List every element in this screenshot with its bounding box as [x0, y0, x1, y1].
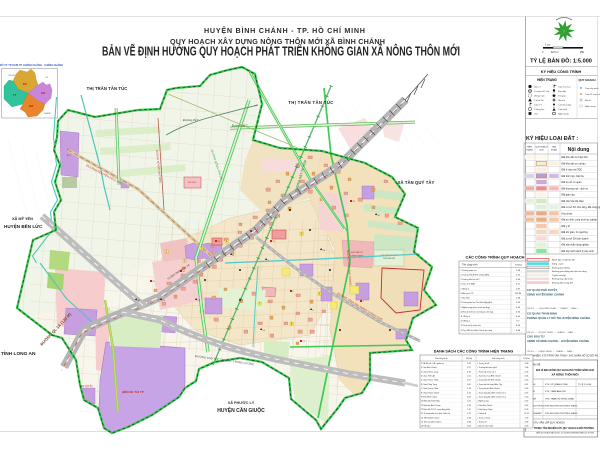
svg-text:CƠ QUAN THẨM ĐỊNH: CƠ QUAN THẨM ĐỊNH	[527, 311, 557, 316]
svg-text:XÃ MỸ YÊN: XÃ MỸ YÊN	[12, 216, 33, 221]
svg-text:0.04: 0.04	[525, 376, 529, 378]
svg-text:Trạm thu mua: Trạm thu mua	[558, 85, 571, 88]
svg-text:Đất hỗn hợp, biệt thự: Đất hỗn hợp, biệt thự	[562, 175, 585, 178]
svg-text:12 Đất CA, PCCC, trạm đăng kiể: 12 Đất CA, PCCC, trạm đăng kiểm	[421, 408, 451, 411]
svg-text:10 Khu di tích lịch sử (trùng: 10 Khu di tích lịch sử (trùng tu, tôn tạ…	[461, 310, 494, 313]
svg-text:BẢN VẼ ĐỊNH HƯỚNG QUY HOẠCH PH: BẢN VẼ ĐỊNH HƯỚNG QUY HOẠCH PHÁT TRIỂN K…	[102, 44, 460, 59]
svg-text:3 Chùa Phước Long: 3 Chùa Phước Long	[421, 371, 438, 373]
svg-text:0.58: 0.58	[525, 396, 529, 398]
svg-text:Chợ: Chợ	[534, 113, 539, 115]
svg-text:THỊ TRẤN TÂN TÚC: THỊ TRẤN TÂN TÚC	[87, 86, 128, 91]
svg-text:Bưu điện: Bưu điện	[558, 90, 566, 93]
svg-text:0.27: 0.27	[467, 367, 471, 369]
svg-text:Trường học: Trường học	[534, 109, 544, 111]
svg-text:13 Trạm xử lý nước thải: 13 Trạm xử lý nước thải	[461, 324, 482, 327]
svg-text:Trạm XL nước thải: Trạm XL nước thải	[585, 93, 600, 96]
svg-text:HIỆN TRẠNG: HIỆN TRẠNG	[537, 77, 557, 82]
svg-text:Tên công trình: Tên công trình	[435, 357, 448, 360]
svg-text:1.76: 1.76	[525, 417, 529, 419]
svg-text:XÃ TÂN QUÝ TÂY: XÃ TÂN QUÝ TÂY	[398, 180, 435, 185]
svg-text:0.08: 0.08	[525, 422, 529, 424]
svg-text:Ranh đất có QĐ thu hồi: Ranh đất có QĐ thu hồi	[552, 259, 575, 262]
svg-text:+ Trạm cư B số: + Trạm cư B số	[477, 416, 491, 419]
svg-text:Tuyến xe buýt: Tuyến xe buýt	[552, 274, 566, 277]
svg-text:Nghĩa trang: Nghĩa trang	[585, 105, 595, 108]
svg-text:Nhà thờ: Nhà thờ	[558, 99, 566, 102]
svg-text:0.18: 0.18	[467, 371, 471, 373]
svg-text:Đất văn hóa thể thao: Đất văn hóa thể thao	[562, 200, 585, 203]
svg-text:+ Trạm trộn bê tông Miền Tây: + Trạm trộn bê tông Miền Tây	[477, 383, 502, 386]
svg-text:0.47: 0.47	[525, 401, 529, 403]
svg-text:Sông - rạch: Sông - rạch	[552, 263, 564, 266]
svg-text:UB ấp, trạm: UB ấp, trạm	[534, 94, 545, 97]
svg-text:0.09: 0.09	[525, 371, 529, 373]
svg-text:Đất thương mại - dịch vụ: Đất thương mại - dịch vụ	[562, 187, 589, 190]
svg-text:C.trình hạ tầng: C.trình hạ tầng	[558, 103, 571, 106]
svg-text:+ Kho Bình Thành: + Kho Bình Thành	[477, 405, 492, 407]
svg-text:UBND XÃ BÌNH CHÁNH - HUYỆN BÌN: UBND XÃ BÌNH CHÁNH - HUYỆN BÌNH CHÁNH	[527, 338, 589, 343]
svg-text:C.trình VH: C.trình VH	[534, 99, 544, 102]
svg-text:0.44: 0.44	[525, 380, 529, 382]
svg-text:7 Khu TĐC: 7 Khu TĐC	[461, 298, 471, 300]
svg-text:5 Chùa Phước Thiện: 5 Chùa Phước Thiện	[421, 380, 439, 382]
svg-text:1.15: 1.15	[467, 409, 471, 411]
svg-text:0.07: 0.07	[467, 380, 471, 382]
svg-text:Nghĩa trang: Nghĩa trang	[558, 112, 568, 115]
svg-text:12 UB ấp 1: 12 UB ấp 1	[461, 320, 470, 323]
svg-text:9 Nghĩa trang (hoàn chỉnh hạ: 9 Nghĩa trang (hoàn chỉnh hạ tầng)	[461, 306, 491, 309]
svg-text:QUY HOẠCH: QUY HOẠCH	[535, 146, 548, 149]
svg-text:CÁC CÔNG TRÌNH QUY HOẠCH: CÁC CÔNG TRÌNH QUY HOẠCH	[466, 255, 525, 260]
svg-text:KDC MỚI: KDC MỚI	[188, 181, 196, 184]
svg-text:+ Kho Hưng Thịnh: + Kho Hưng Thịnh	[477, 409, 492, 411]
svg-text:CHỦ NHIỆM: KTS TRẦN VĂN THẨM: CHỦ NHIỆM: KTS TRẦN VĂN THẨM - XÁC NHẬN …	[527, 355, 598, 358]
svg-text:Đất y tế: Đất y tế	[562, 225, 571, 228]
svg-text:Kho chứa: Kho chứa	[562, 212, 573, 215]
svg-text:HUYỆN CẦN GIUỘC: HUYỆN CẦN GIUỘC	[217, 406, 265, 414]
svg-text:+ Trạm xăng dầu Bình Chánh số: + Trạm xăng dầu Bình Chánh số 2	[477, 395, 506, 398]
svg-text:VB SỐ: ....../UBND NGÀY ....: VB SỐ: ....../UBND NGÀY .... THÁNG .... …	[527, 350, 575, 353]
svg-text:+ Trạm y tế: + Trạm y tế	[477, 421, 487, 424]
svg-text:6 Bến xe tải TP: 6 Bến xe tải TP	[461, 292, 475, 295]
svg-text:10 Miếu Bà Thiên Hậu: 10 Miếu Bà Thiên Hậu	[421, 400, 440, 403]
svg-text:1.04: 1.04	[525, 367, 529, 369]
svg-text:2 Trường THCS Bình Chánh (MR): 2 Trường THCS Bình Chánh (MR)	[461, 273, 490, 276]
svg-text:0.88: 0.88	[467, 422, 471, 424]
svg-text:Tên công trình: Tên công trình	[462, 264, 478, 267]
svg-text:0.19: 0.19	[467, 413, 471, 415]
svg-text:0.15: 0.15	[467, 392, 471, 394]
svg-text:Trạm điện: Trạm điện	[558, 108, 567, 111]
svg-text:15 Tiểu học Bình Chánh: 15 Tiểu học Bình Chánh	[421, 421, 441, 424]
svg-text:1.08: 1.08	[467, 363, 471, 365]
svg-text:Đường chỉ 7: Đường chỉ 7	[183, 118, 199, 122]
svg-text:8 Chùa Phước Thạnh: 8 Chùa Phước Thạnh	[421, 392, 439, 394]
svg-text:Nội dung: Nội dung	[568, 147, 590, 153]
svg-text:0.09: 0.09	[467, 396, 471, 398]
svg-text:13 Trường mầm non Hoa Thiên Lý: 13 Trường mầm non Hoa Thiên Lý	[421, 412, 450, 415]
svg-text:UBND HUYỆN BÌNH CHÁNH: UBND HUYỆN BÌNH CHÁNH	[527, 292, 564, 297]
svg-text:1 cm: 1 cm	[545, 44, 550, 47]
svg-text:Đất cơ sở SX kinh doanh: Đất cơ sở SX kinh doanh	[562, 237, 589, 240]
svg-text:+ Trạm thu phí Bình Chánh: + Trạm thu phí Bình Chánh	[477, 387, 500, 390]
svg-text:Đường ống cấp nước: Đường ống cấp nước	[552, 278, 574, 281]
svg-text:+ Trạm xăng dầu Bình Chánh số: + Trạm xăng dầu Bình Chánh số 1	[477, 391, 506, 394]
svg-text:0.26: 0.26	[525, 409, 529, 411]
svg-text:0.18: 0.18	[467, 405, 471, 407]
svg-text:6 Chùa Pháp Tạng: 6 Chùa Pháp Tạng	[421, 384, 437, 386]
svg-text:0.65: 0.65	[467, 384, 471, 386]
svg-text:Đường chỉ 7: Đường chỉ 7	[232, 124, 248, 128]
svg-text:+ Trạm biến thế Bình Chánh: + Trạm biến thế Bình Chánh	[477, 379, 501, 382]
svg-text:0.41: 0.41	[525, 384, 529, 386]
svg-text:ĐOẠN: ĐOẠN	[551, 149, 557, 152]
svg-text:NHA BE: NHA BE	[44, 112, 51, 115]
svg-text:3 Trường tiểu học số 2: 3 Trường tiểu học số 2	[461, 278, 480, 281]
svg-text:11 Nhà thờ Bình Thuận: 11 Nhà thờ Bình Thuận	[421, 404, 441, 407]
svg-text:2.48: 2.48	[525, 426, 529, 428]
svg-text:+ Trạm y tế xã: + Trạm y tế xã	[477, 362, 490, 365]
svg-text:+ Trạm thu mua Bình Chánh: + Trạm thu mua Bình Chánh	[477, 375, 501, 378]
svg-text:165.86: 165.86	[515, 293, 522, 295]
svg-text:Q.8: Q.8	[45, 77, 48, 79]
svg-text:Đất khu dân cư hiện hữu: Đất khu dân cư hiện hữu	[562, 156, 589, 159]
svg-text:7 Chùa Quang Thảo: 7 Chùa Quang Thảo	[421, 387, 438, 390]
svg-text:Đất khu dân cư cải tạo: Đất khu dân cư cải tạo	[562, 162, 587, 165]
svg-text:CHỦ ĐẦU TƯ: CHỦ ĐẦU TƯ	[527, 334, 545, 339]
svg-text:CHỢ ĐẦU MỐI: CHỢ ĐẦU MỐI	[383, 257, 396, 260]
svg-text:0.48: 0.48	[467, 417, 471, 419]
svg-text:Đất trụ sở cơ quan: Đất trụ sở cơ quan	[562, 181, 583, 184]
svg-text:HUYỆN BÌNH CHÁNH - TP. HỒ CHÍ: HUYỆN BÌNH CHÁNH - TP. HỒ CHÍ MINH	[204, 25, 365, 35]
svg-text:HIỆN: HIỆN	[527, 146, 532, 149]
svg-text:0.08: 0.08	[525, 363, 529, 365]
svg-text:B.C: B.C	[23, 83, 27, 86]
svg-text:9 Đình Bình Chánh: 9 Đình Bình Chánh	[421, 396, 437, 398]
svg-text:1 UB ND xã - CA - quân sự: 1 UB ND xã - CA - quân sự	[421, 362, 445, 365]
svg-text:TỈ LỆ 1:5.000: TỈ LỆ 1:5.000	[578, 383, 592, 386]
svg-text:+ Bãi xe Cần Giuộc: + Bãi xe Cần Giuộc	[477, 425, 493, 428]
svg-text:4 Chùa Thiên An: 4 Chùa Thiên An	[421, 375, 435, 378]
svg-text:QĐ SỐ: ....../QĐ-UBND NGÀY ..: QĐ SỐ: ....../QĐ-UBND NGÀY .... THÁNG ..…	[527, 307, 580, 310]
svg-text:KÝ HIỆU CÔNG TRÌNH: KÝ HIỆU CÔNG TRÌNH	[541, 69, 582, 74]
svg-text:Cơ quan HC cấp: Cơ quan HC cấp	[534, 90, 550, 93]
svg-text:14 Tuy. Mễ, khu Bình Chánh mở: 14 Tuy. Mễ, khu Bình Chánh mở rộng	[461, 329, 492, 332]
svg-text:TỶ LỆ BẢN ĐỒ: 1:5.000: TỶ LỆ BẢN ĐỒ: 1:5.000	[530, 57, 592, 65]
svg-text:0.08: 0.08	[467, 426, 471, 428]
svg-text:4 Trạm Y tế (MR): 4 Trạm Y tế (MR)	[461, 283, 476, 286]
svg-text:+ Chành A: + Chành A	[477, 412, 487, 415]
svg-text:62.5 m: 62.5 m	[551, 51, 558, 54]
svg-text:0.16: 0.16	[525, 392, 529, 394]
svg-text:KÝ HIỆU LOẠI ĐẤT :: KÝ HIỆU LOẠI ĐẤT :	[526, 134, 578, 142]
svg-text:VIỆN QUY HOẠCH XÂY DỰNG - SỐ 4: VIỆN QUY HOẠCH XÂY DỰNG - SỐ 413 NGUYỄN …	[536, 432, 594, 435]
svg-text:16 UB ấp 2: 16 UB ấp 2	[421, 425, 430, 428]
svg-text:+ Trạm cấp nước số 1: + Trạm cấp nước số 1	[477, 370, 496, 373]
svg-text:THS NGUYỄN TRƯỜNG GIANG: THS NGUYỄN TRƯỜNG GIANG	[545, 405, 578, 408]
svg-text:250: 250	[580, 51, 585, 54]
svg-text:0.41: 0.41	[525, 405, 529, 407]
svg-text:1 Trường mầm non: 1 Trường mầm non	[461, 269, 477, 272]
svg-text:THỊ TRẤN TÂN TÚC: THỊ TRẤN TÂN TÚC	[288, 100, 333, 105]
svg-text:KHU DÂN CƯ: KHU DÂN CƯ	[351, 251, 363, 254]
svg-text:2 Chợ Bình Chánh: 2 Chợ Bình Chánh	[421, 367, 437, 369]
svg-text:Đất an ninh, công trình sự ngh: Đất an ninh, công trình sự nghiệp	[562, 219, 598, 222]
svg-text:0.18: 0.18	[467, 388, 471, 390]
svg-text:XÃ PHƯỚC LÝ: XÃ PHƯỚC LÝ	[228, 400, 255, 405]
svg-text:8 Trường tiểu học Tân Kiên (N: 8 Trường tiểu học Tân Kiên (Nguyễn)	[461, 301, 493, 304]
svg-text:Đất cơ sở SX, kho tàng, đất cô: Đất cơ sở SX, kho tàng, đất công nghiệp	[562, 206, 600, 209]
svg-text:THS. TRẦN VŨ HỒNG CHÂU: THS. TRẦN VŨ HỒNG CHÂU	[545, 397, 575, 400]
svg-text:Đất ở xây mới TĐC: Đất ở xây mới TĐC	[562, 169, 583, 172]
svg-text:HUYỆN BẾN LỨC: HUYỆN BẾN LỨC	[4, 222, 43, 229]
svg-text:N.B: N.B	[29, 105, 33, 108]
svg-text:KTS. TRẦN ANH CHỈ: KTS. TRẦN ANH CHỈ	[545, 390, 566, 393]
svg-text:0.11: 0.11	[467, 376, 471, 378]
svg-text:5 UB ấp 3: 5 UB ấp 3	[461, 287, 469, 290]
svg-text:QUY HOẠCH: QUY HOẠCH	[578, 78, 595, 82]
svg-text:PHÒNG QUẢN LÝ ĐÔ THỊ HUYỆN BÌN: PHÒNG QUẢN LÝ ĐÔ THỊ HUYỆN BÌNH CHÁNH	[527, 315, 590, 320]
svg-text:CƠ QUAN PHÊ DUYỆT: CƠ QUAN PHÊ DUYỆT	[527, 287, 557, 292]
svg-text:X.B: X.B	[41, 92, 45, 95]
svg-text:DT(ha): DT(ha)	[466, 358, 473, 360]
svg-text:Dân cư: Dân cư	[534, 86, 541, 88]
svg-text:BV. M.TÂY: BV. M.TÂY	[81, 385, 93, 388]
svg-text:Đất sản xuất nông nghiệp: Đất sản xuất nông nghiệp	[562, 244, 590, 247]
svg-text:Đất tôn giáo, tín ngưỡng: Đất tôn giáo, tín ngưỡng	[562, 231, 589, 234]
svg-text:KTS. LÊ QUANG VINH: KTS. LÊ QUANG VINH	[545, 383, 568, 386]
svg-text:TRẠNG: TRẠNG	[526, 149, 533, 152]
svg-text:T.T: T.T	[13, 94, 17, 97]
svg-text:DT(ha): DT(ha)	[515, 265, 522, 267]
svg-text:+ Nghĩa trang: + Nghĩa trang	[477, 400, 489, 403]
svg-text:DT(ha): DT(ha)	[523, 358, 530, 360]
svg-text:+ Trường tiểu học nghề: + Trường tiểu học nghề	[477, 366, 497, 369]
svg-text:Đường giao thông: Đường giao thông	[552, 266, 571, 269]
svg-text:DANH SÁCH CÁC CÔNG TRÌNH HIỆN: DANH SÁCH CÁC CÔNG TRÌNH HIỆN TRẠNG	[434, 349, 514, 354]
svg-text:Trạm cấp nước: Trạm cấp nước	[585, 87, 599, 90]
svg-text:THS NGUYỄN TRƯỜNG GIANG: THS NGUYỄN TRƯỜNG GIANG	[545, 412, 578, 415]
svg-text:Tên công trình: Tên công trình	[492, 357, 505, 360]
svg-text:T.dục TT: T.dục TT	[534, 104, 543, 106]
svg-text:Đất cây xanh cách ly cây xanh: Đất cây xanh cách ly cây xanh	[562, 250, 595, 253]
svg-text:Đường giao thông dự kiến mở rộ: Đường giao thông dự kiến mở rộng	[552, 270, 587, 273]
svg-text:TỈNH LONG AN: TỈNH LONG AN	[1, 350, 36, 357]
svg-text:Tôn giáo: Tôn giáo	[558, 95, 567, 97]
svg-text:11 UB ấp 4: 11 UB ấp 4	[461, 315, 470, 318]
svg-text:14 THCS Bình Chánh: 14 THCS Bình Chánh	[421, 417, 439, 419]
svg-text:Đất giáo dục: Đất giáo dục	[562, 194, 576, 197]
svg-text:0.12: 0.12	[467, 401, 471, 403]
svg-text:Đường điện trung thế: Đường điện trung thế	[552, 282, 574, 285]
svg-text:BẾN XE TẢI TP: BẾN XE TẢI TP	[122, 389, 144, 394]
svg-text:11.76: 11.76	[524, 413, 529, 415]
svg-text:Bãi rác: Bãi rác	[585, 99, 591, 102]
svg-text:GIAI: GIAI	[552, 146, 556, 149]
svg-text:0.46: 0.46	[525, 388, 529, 390]
svg-text:TP.HCM: TP.HCM	[8, 75, 15, 77]
